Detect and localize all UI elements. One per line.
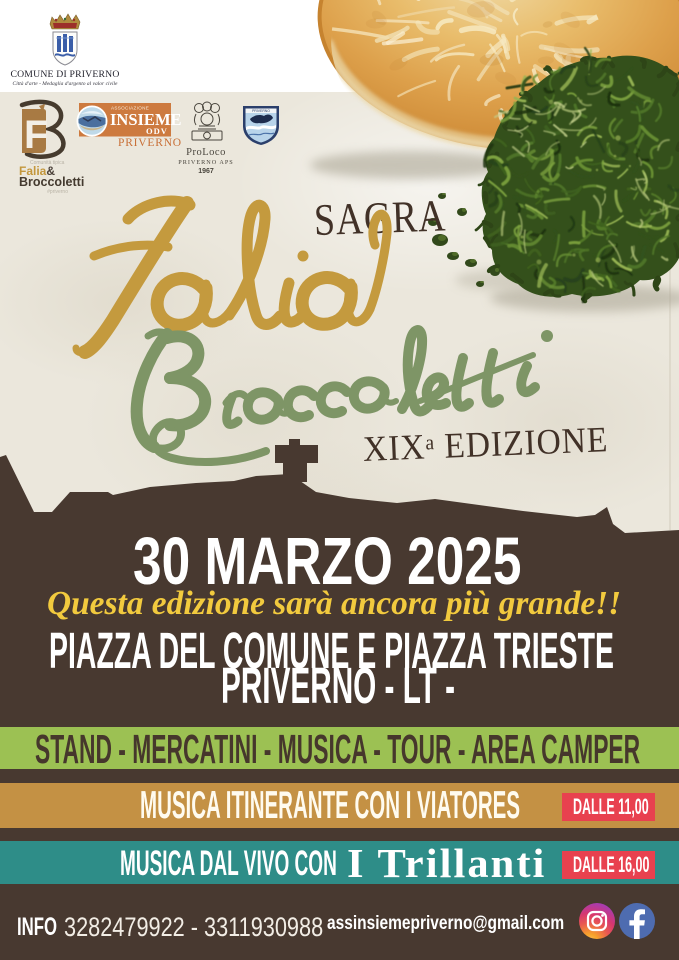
- svg-text:PRIVERNO: PRIVERNO: [118, 137, 182, 149]
- svg-text:ProLoco: ProLoco: [186, 147, 226, 158]
- svg-text:#priverno: #priverno: [47, 189, 68, 195]
- svg-text:ODV: ODV: [146, 126, 168, 136]
- svg-text:PRIVERNO APS: PRIVERNO APS: [178, 159, 234, 166]
- svg-text:Città d'arte - Medaglia d'arge: Città d'arte - Medaglia d'argento al val…: [13, 81, 119, 87]
- svg-text:PRIVERNO: PRIVERNO: [252, 109, 270, 113]
- svg-text:COMUNE DI PRIVERNO: COMUNE DI PRIVERNO: [10, 69, 119, 80]
- svg-text:Broccoletti: Broccoletti: [19, 175, 84, 189]
- svg-text:1967: 1967: [198, 168, 214, 175]
- svg-text:F: F: [24, 113, 48, 157]
